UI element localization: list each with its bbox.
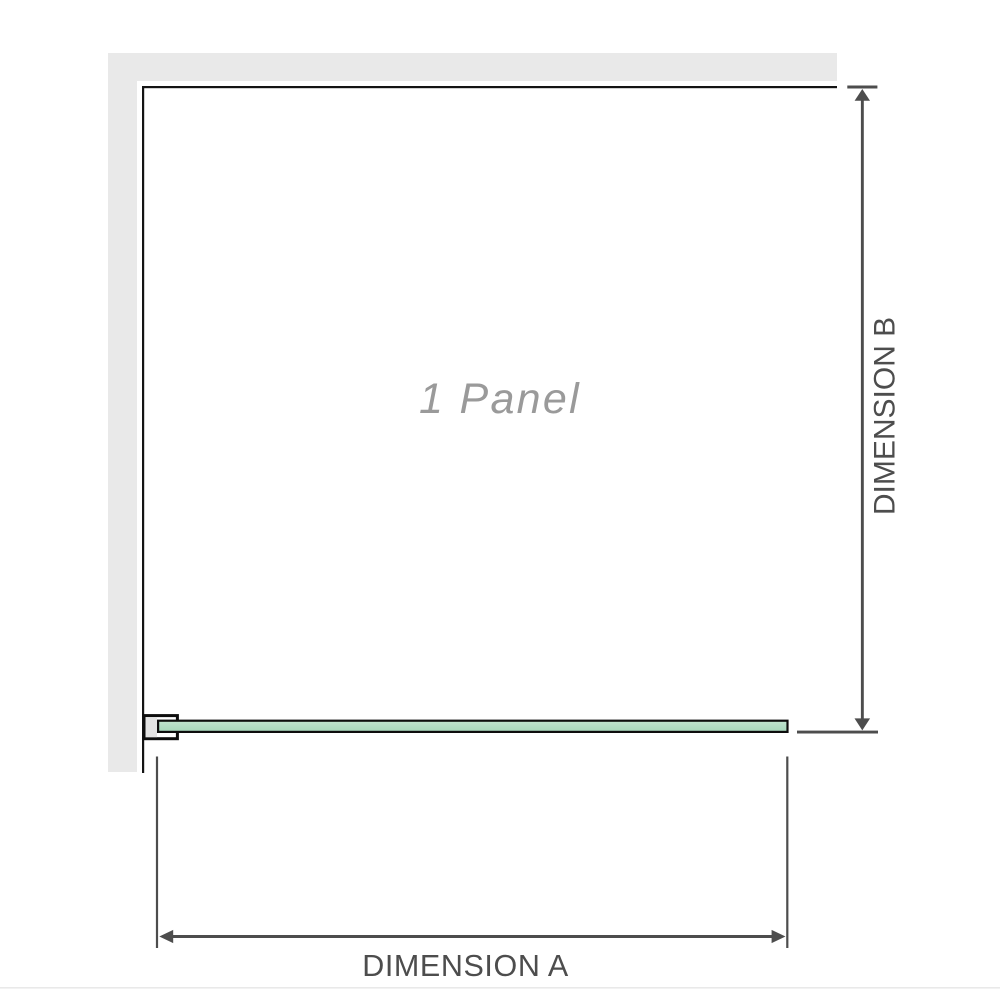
svg-text:DIMENSION A: DIMENSION A — [362, 949, 569, 983]
svg-text:DIMENSION B: DIMENSION B — [868, 317, 901, 515]
svg-text:1 Panel: 1 Panel — [419, 375, 581, 423]
